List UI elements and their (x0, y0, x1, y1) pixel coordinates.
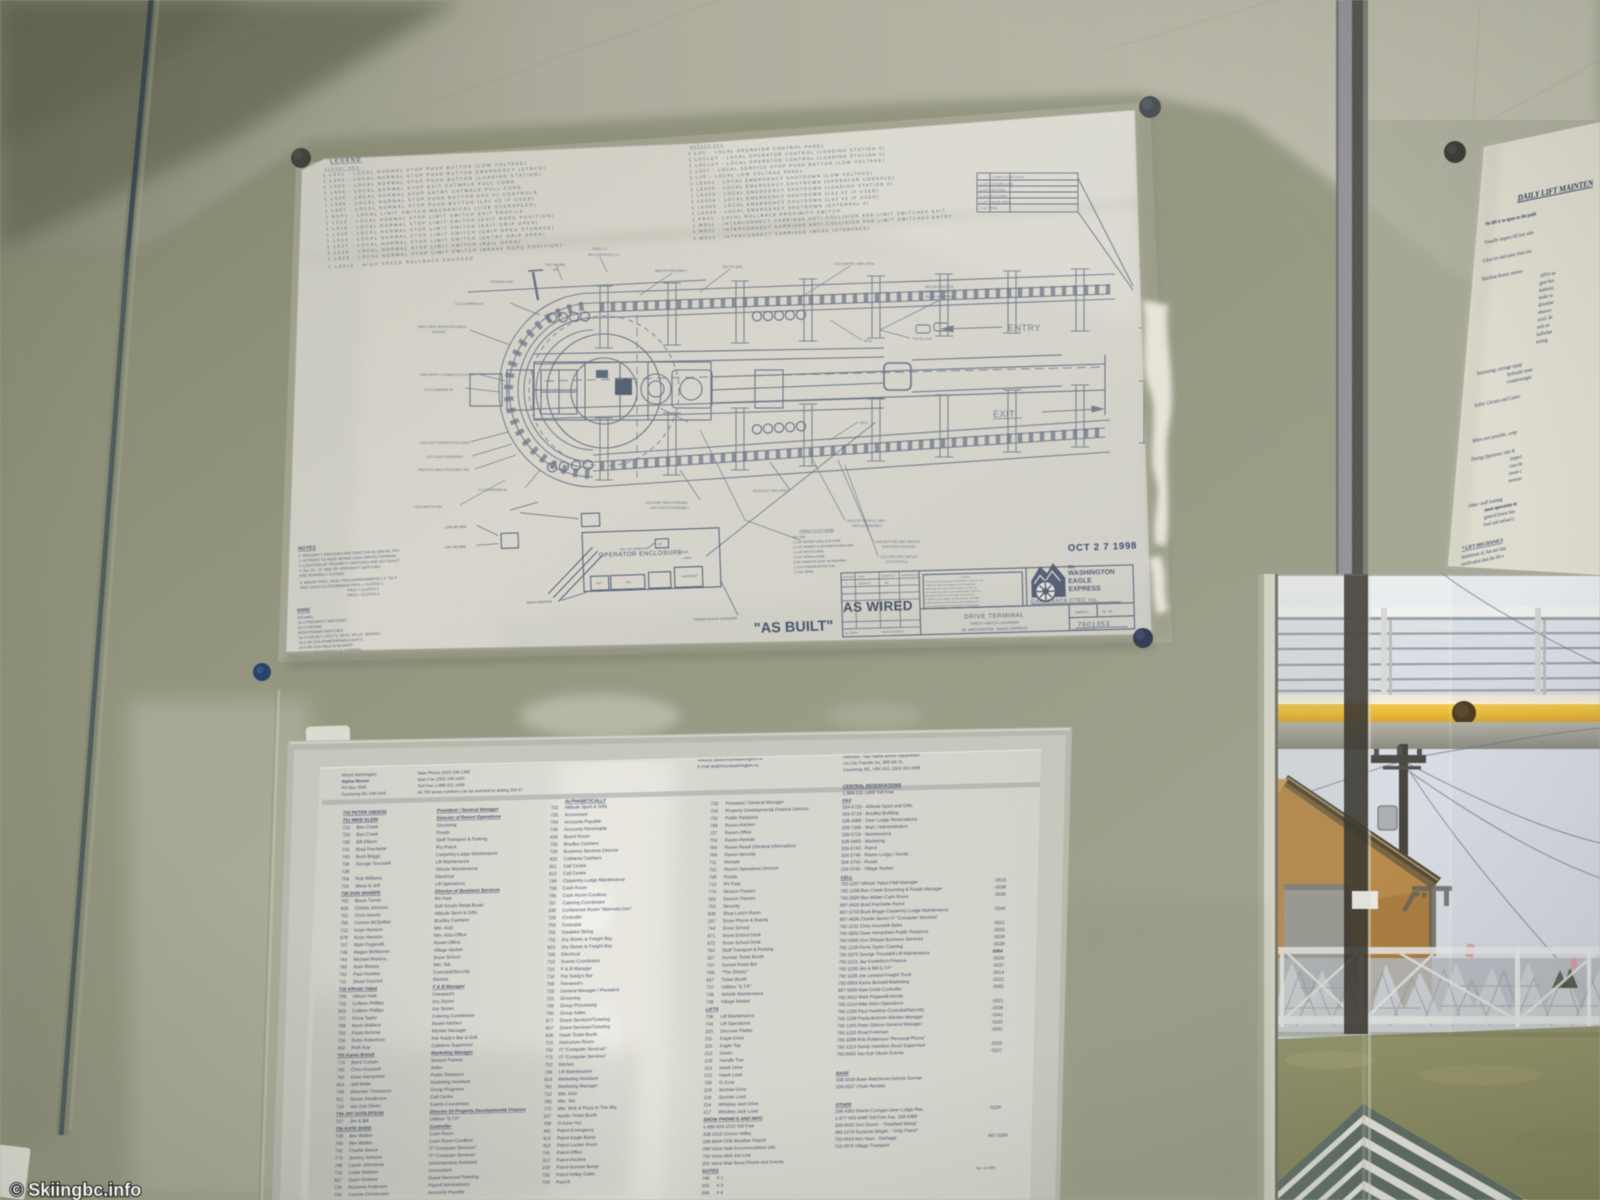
svg-text:© Skiingbc.info: © Skiingbc.info (10, 1180, 141, 1200)
